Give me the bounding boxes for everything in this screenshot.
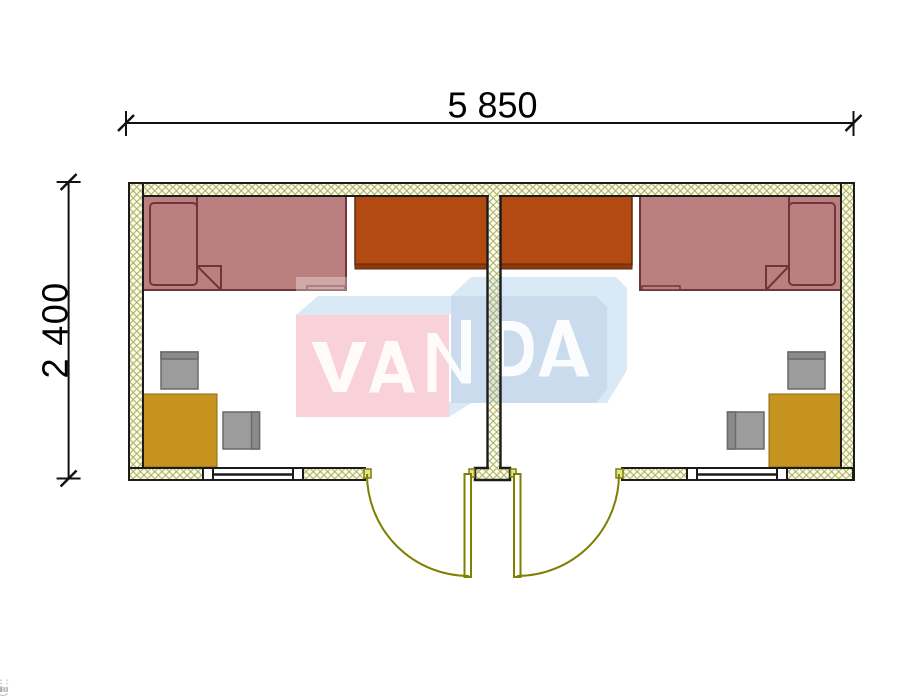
svg-text:5 850: 5 850	[447, 85, 537, 126]
svg-text:2 400: 2 400	[35, 281, 76, 378]
